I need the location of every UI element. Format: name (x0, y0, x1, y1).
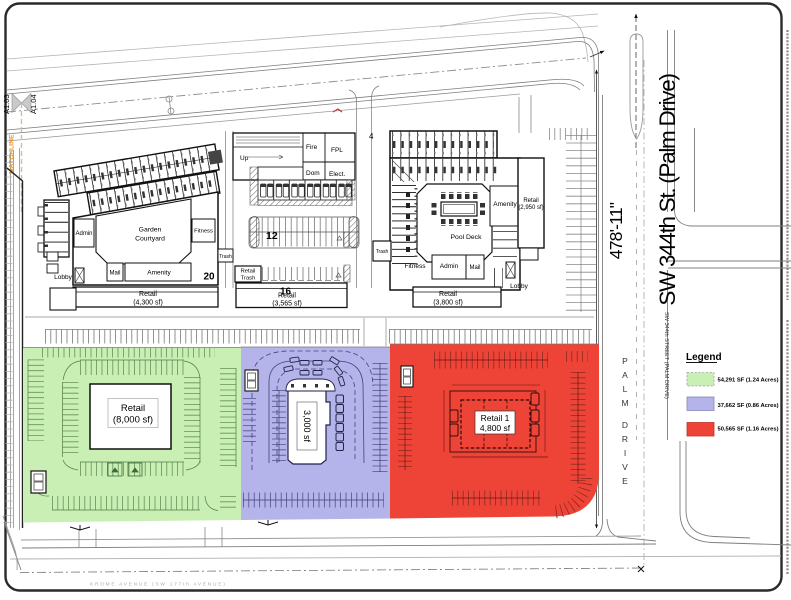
svg-text:Trash: Trash (241, 276, 256, 282)
svg-text:54,291 SF (1.24 Acres): 54,291 SF (1.24 Acres) (718, 378, 779, 384)
svg-text:478'-11": 478'-11" (606, 202, 626, 259)
svg-text:37,662 SF (0.86 Acres): 37,662 SF (0.86 Acres) (718, 403, 779, 409)
svg-text:Trash: Trash (376, 249, 389, 255)
svg-text:Admin: Admin (440, 263, 459, 270)
svg-text:Fitness: Fitness (405, 263, 427, 270)
svg-text:Elect.: Elect. (329, 171, 345, 178)
svg-text:KROME AVENUE (SW 177t: KROME AVENUE (SW 177th AVENUE) (90, 582, 227, 588)
svg-text:Up: Up (240, 155, 249, 162)
svg-text:Retail: Retail (121, 403, 145, 414)
svg-text:Retail 1: Retail 1 (481, 413, 510, 423)
svg-text:3,000 sf: 3,000 sf (302, 410, 312, 443)
svg-text:A1.03: A1.03 (2, 94, 11, 114)
svg-text:Fitness: Fitness (194, 229, 213, 235)
svg-text:Mail: Mail (109, 271, 120, 277)
svg-text:L: L (623, 384, 628, 394)
svg-text:P: P (622, 356, 628, 366)
svg-text:Legend: Legend (686, 352, 722, 363)
svg-text:A1.04: A1.04 (29, 94, 38, 114)
svg-text:Retail: Retail (278, 293, 296, 300)
svg-text:Retail: Retail (139, 291, 157, 298)
svg-text:V: V (622, 462, 628, 472)
svg-text:Amenity: Amenity (147, 270, 171, 277)
svg-text:20: 20 (204, 272, 216, 283)
svg-text:Garden: Garden (139, 227, 162, 234)
svg-text:(3,800 sf): (3,800 sf) (433, 300, 463, 307)
svg-text:Retail: Retail (523, 198, 538, 204)
svg-text:E: E (622, 476, 628, 486)
svg-text:Dom: Dom (306, 170, 320, 177)
svg-text:Amenity: Amenity (493, 201, 517, 208)
svg-text:Lobby: Lobby (54, 274, 72, 281)
svg-text:SW 344th STREET (PALM DRIV: SW 344th STREET (PALM DRIVE) (663, 312, 669, 399)
svg-text:Retail: Retail (439, 291, 457, 298)
svg-text:FPL: FPL (331, 147, 343, 154)
svg-text:(2,950 sf): (2,950 sf) (518, 205, 543, 211)
svg-text:Trash: Trash (219, 254, 232, 260)
svg-text:50,565 SF (1.16 Acres): 50,565 SF (1.16 Acres) (718, 427, 779, 433)
svg-text:R: R (622, 434, 628, 444)
svg-text:Retail: Retail (241, 269, 256, 275)
svg-text:MATCHLINE: MATCHLINE (9, 134, 16, 174)
svg-text:12: 12 (266, 230, 278, 242)
svg-text:D: D (622, 420, 628, 430)
svg-text:Pool Deck: Pool Deck (451, 234, 483, 241)
svg-text:Mail: Mail (469, 265, 480, 271)
svg-text:Lobby: Lobby (510, 283, 528, 290)
svg-text:M: M (621, 398, 628, 408)
svg-text:Courtyard: Courtyard (135, 236, 165, 243)
svg-text:A: A (622, 370, 628, 380)
svg-text:4: 4 (369, 132, 374, 141)
svg-text:Fire: Fire (306, 144, 318, 151)
svg-text:(4,300 sf): (4,300 sf) (133, 300, 163, 307)
svg-text:Admin: Admin (75, 231, 92, 237)
svg-text:4,800 sf: 4,800 sf (480, 423, 511, 433)
svg-text:(8,000 sf): (8,000 sf) (113, 415, 153, 426)
svg-text:SW 344th St. (Palm Drive): SW 344th St. (Palm Drive) (655, 74, 680, 306)
svg-text:I: I (624, 448, 626, 458)
svg-text:(3,565 sf): (3,565 sf) (272, 301, 302, 308)
